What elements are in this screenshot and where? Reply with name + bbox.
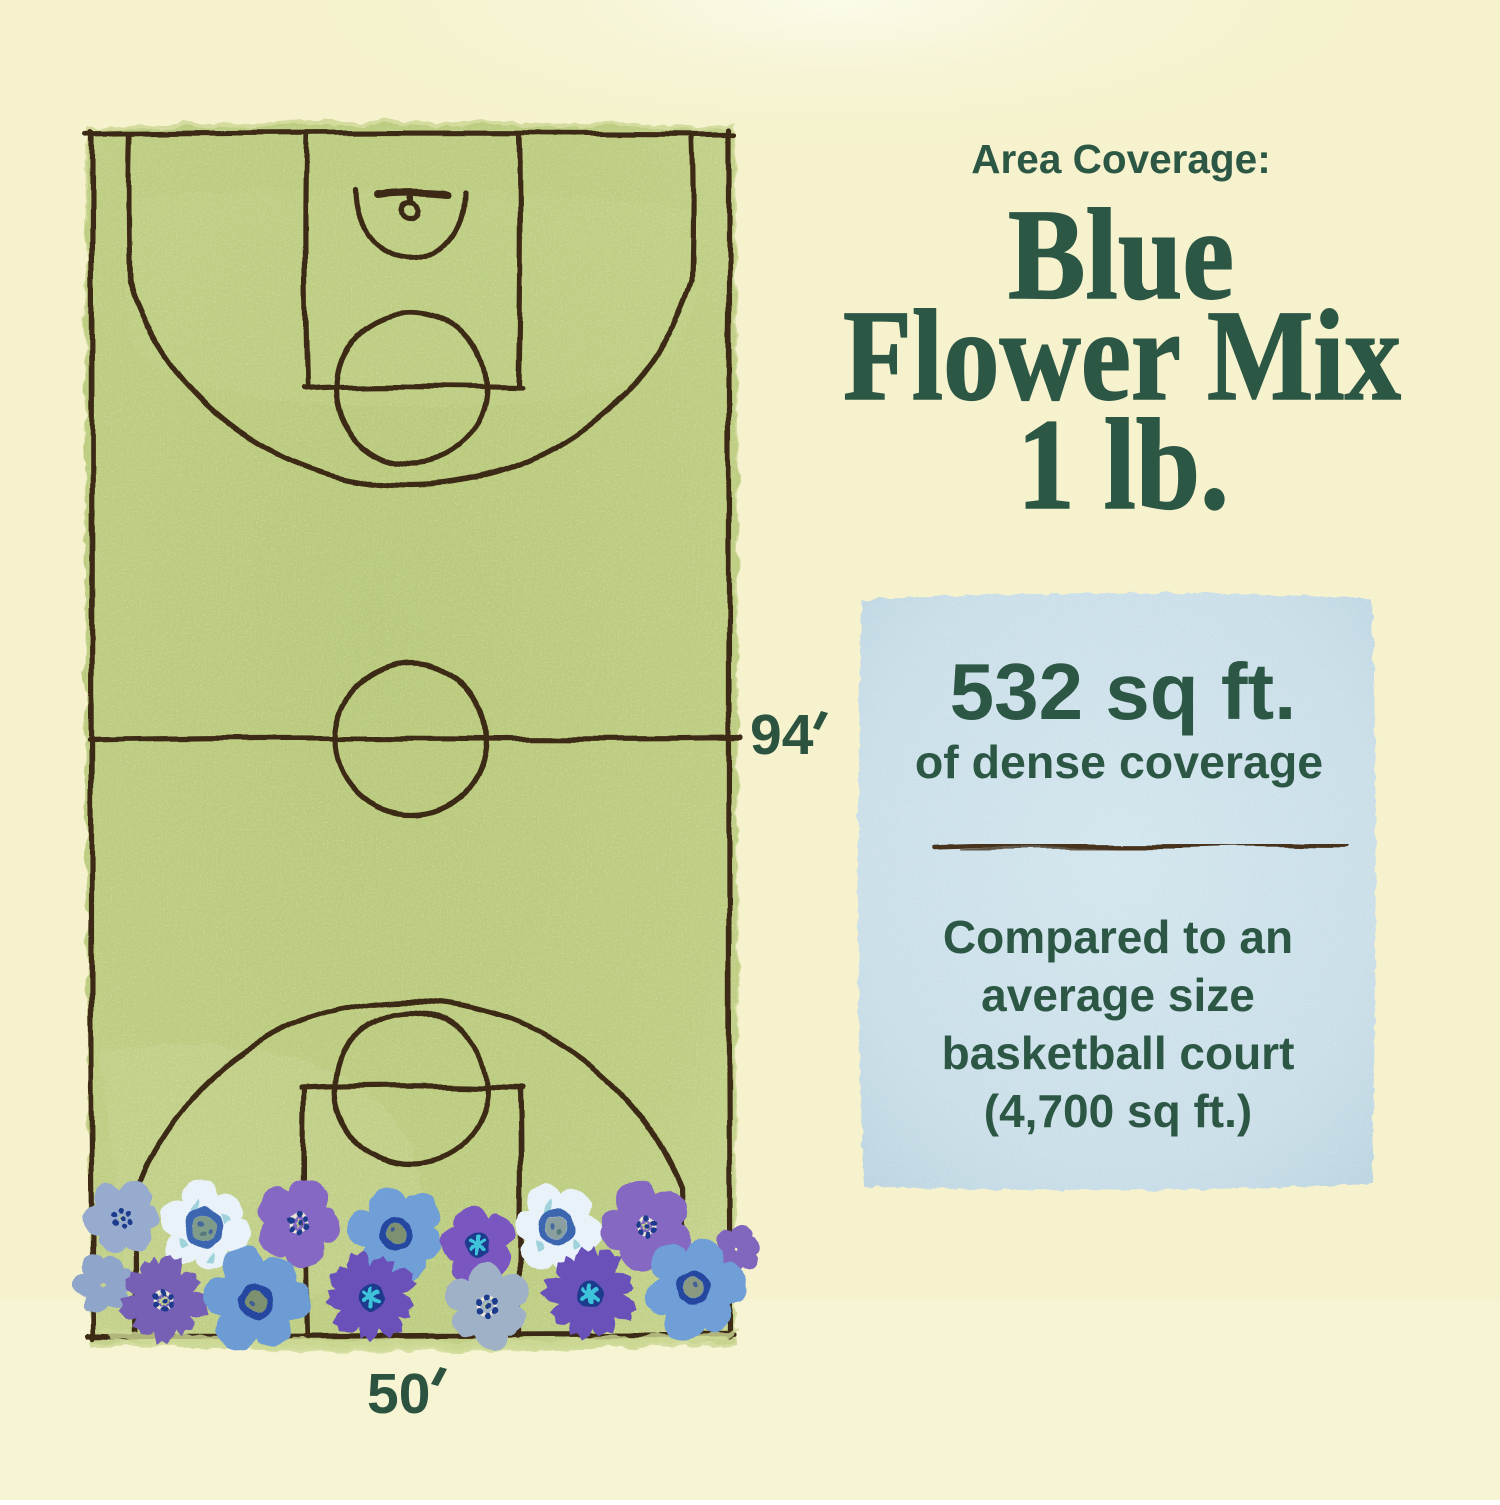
svg-text:94: 94 [750, 703, 814, 767]
svg-text:50: 50 [367, 1362, 430, 1426]
svg-text:Area Coverage:: Area Coverage: [971, 136, 1270, 182]
svg-text:Compared to an: Compared to an [943, 911, 1293, 963]
svg-text:(4,700 sq ft.): (4,700 sq ft.) [984, 1085, 1252, 1137]
svg-text:average size: average size [981, 969, 1255, 1021]
svg-text:basketball court: basketball court [942, 1027, 1295, 1079]
svg-text:532 sq ft.: 532 sq ft. [950, 647, 1297, 736]
svg-text:of dense coverage: of dense coverage [915, 736, 1323, 788]
svg-text:1 lb.: 1 lb. [1017, 393, 1229, 537]
